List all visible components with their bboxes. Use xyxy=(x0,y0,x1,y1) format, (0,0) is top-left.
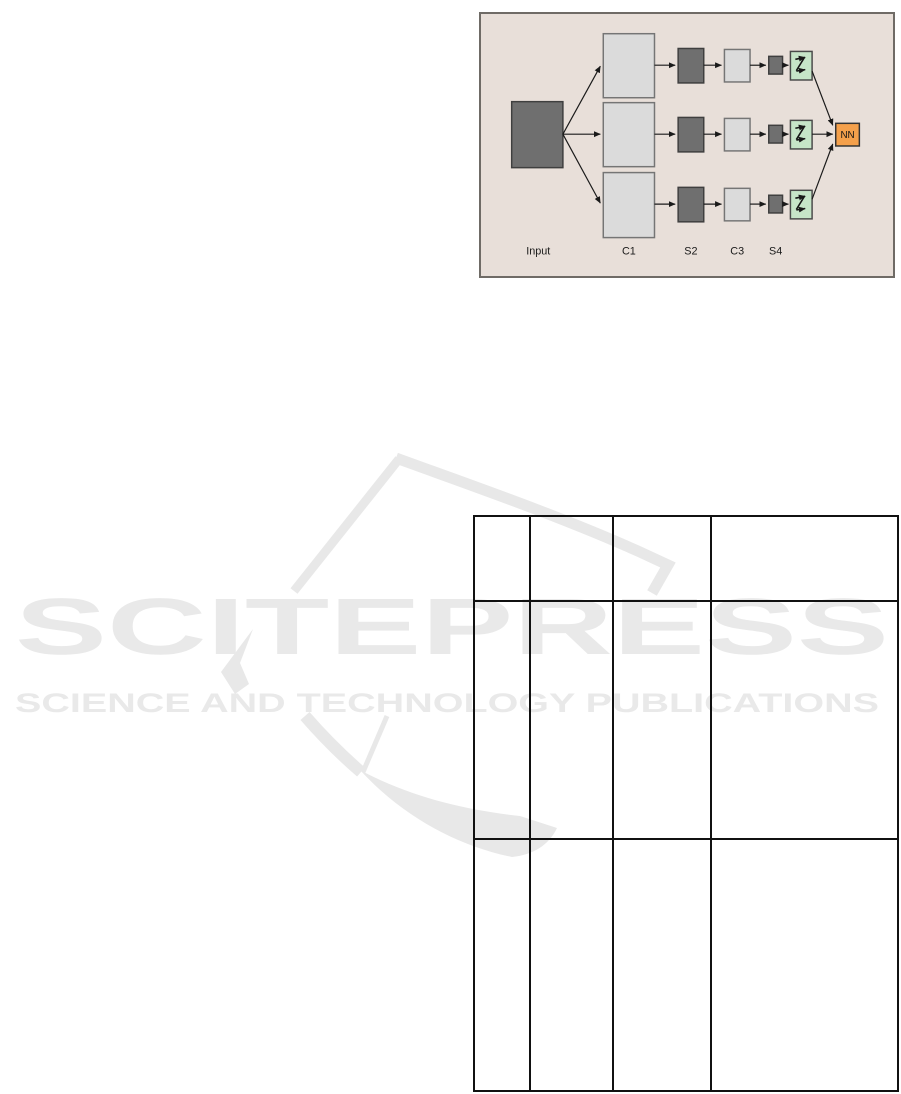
table-cell xyxy=(710,517,897,600)
s4-label: S4 xyxy=(769,245,782,257)
paper-page: SCITEPRESS SCIENCE AND TECHNOLOGY PUBLIC… xyxy=(0,0,901,1094)
table-cell xyxy=(612,838,710,1090)
c1-box-branch1 xyxy=(603,34,654,98)
scan-box-branch1 xyxy=(790,51,812,80)
table-cell xyxy=(529,600,612,838)
table-cell xyxy=(475,600,529,838)
input-box xyxy=(512,102,563,168)
s4-box-branch1 xyxy=(769,56,783,74)
scan-box-branch3 xyxy=(790,190,812,219)
table-cell xyxy=(475,838,529,1090)
c3-label: C3 xyxy=(730,245,744,257)
table-cell xyxy=(475,517,529,600)
s2-label: S2 xyxy=(684,245,697,257)
nn-box-label: NN xyxy=(840,130,854,141)
s2-box-branch1 xyxy=(678,48,704,82)
s2-box-branch3 xyxy=(678,187,704,221)
watermark-check-left xyxy=(305,716,361,772)
c1-box-branch2 xyxy=(603,103,654,167)
s4-box-branch3 xyxy=(769,195,783,213)
c3-box-branch2 xyxy=(724,118,750,151)
table-cell xyxy=(612,600,710,838)
c1-box-branch3 xyxy=(603,173,654,238)
s2-box-branch2 xyxy=(678,117,704,151)
table-cell xyxy=(529,838,612,1090)
cnn-architecture-figure: NN xyxy=(479,12,895,278)
c3-box-branch1 xyxy=(724,49,750,82)
watermark-check-right xyxy=(363,716,387,772)
s4-box-branch2 xyxy=(769,125,783,143)
watermark-book-spine xyxy=(294,459,399,591)
c3-box-branch3 xyxy=(724,188,750,221)
table-cell xyxy=(529,517,612,600)
input-label: Input xyxy=(526,245,550,257)
c1-label: C1 xyxy=(622,245,636,257)
results-table xyxy=(473,515,899,1092)
table-cell xyxy=(710,600,897,838)
table-cell xyxy=(710,838,897,1090)
watermark-page-fold xyxy=(221,629,253,694)
table-cell xyxy=(612,517,710,600)
scan-box-branch2 xyxy=(790,120,812,149)
